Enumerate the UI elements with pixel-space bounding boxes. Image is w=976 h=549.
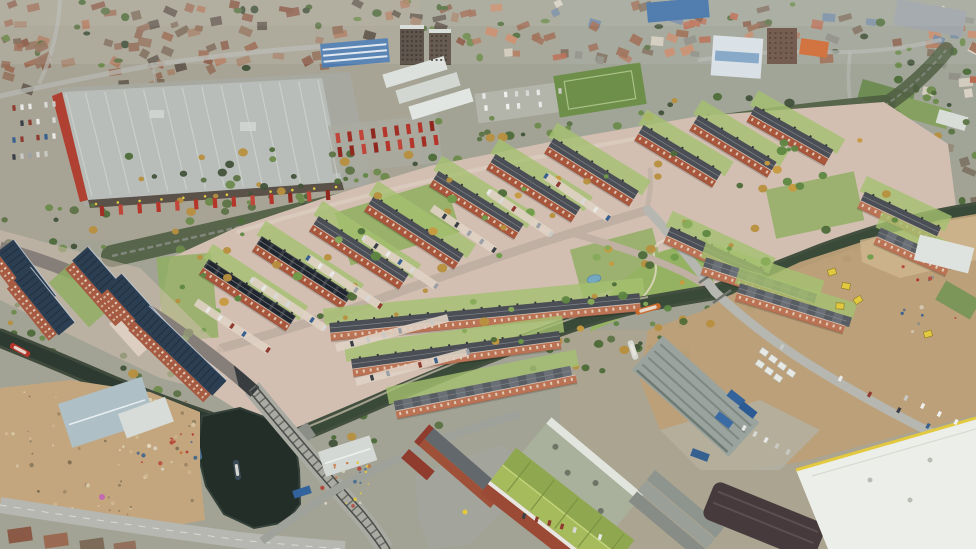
window	[570, 312, 572, 315]
scrap	[169, 440, 173, 444]
tree	[280, 191, 285, 195]
car	[515, 91, 519, 97]
truck	[175, 201, 180, 211]
scrap	[928, 277, 932, 281]
tree	[923, 94, 931, 101]
window	[487, 352, 489, 355]
tree	[247, 191, 252, 195]
tree	[783, 178, 792, 186]
tree	[947, 103, 952, 107]
tree	[272, 261, 281, 269]
tree	[45, 204, 53, 211]
tree	[894, 76, 903, 84]
car	[36, 119, 40, 125]
car	[52, 101, 56, 107]
chimney	[427, 312, 429, 314]
tree	[324, 254, 332, 261]
window	[515, 349, 517, 352]
tree	[638, 251, 648, 259]
house-roof	[964, 88, 973, 98]
tree	[125, 153, 133, 160]
chimney	[484, 339, 486, 341]
rubble	[109, 509, 111, 511]
tree	[933, 99, 939, 104]
tree	[658, 110, 664, 115]
tree	[200, 273, 206, 278]
tree	[758, 185, 767, 193]
scene-canvas	[0, 0, 976, 549]
window	[536, 315, 538, 318]
rubble	[130, 506, 132, 508]
window	[543, 345, 545, 348]
tree	[435, 118, 443, 125]
tree	[428, 154, 437, 162]
window	[501, 351, 503, 354]
rubble	[174, 435, 177, 438]
scrap	[919, 305, 923, 309]
scrap	[170, 438, 172, 440]
tree	[496, 253, 502, 258]
truck	[307, 191, 312, 201]
rubble	[23, 391, 25, 393]
chimney	[534, 302, 536, 304]
tree	[654, 324, 662, 331]
car	[28, 104, 32, 110]
tree	[963, 119, 970, 125]
chimney	[606, 295, 608, 297]
rubble	[130, 450, 133, 453]
window	[556, 313, 558, 316]
tree	[180, 171, 187, 177]
tree	[613, 122, 622, 130]
rubble	[57, 412, 60, 415]
chimney	[373, 317, 375, 319]
rubble	[188, 425, 190, 427]
rubble	[55, 396, 57, 398]
tree	[667, 102, 673, 107]
window	[577, 311, 579, 314]
rubble	[184, 463, 188, 467]
tree	[491, 337, 497, 342]
window	[361, 332, 363, 335]
rubble	[181, 411, 184, 414]
scrap	[366, 465, 368, 467]
tree	[670, 151, 677, 157]
window	[626, 306, 628, 309]
scrap	[141, 453, 145, 457]
car	[504, 92, 508, 98]
scrap	[141, 461, 143, 463]
window	[438, 324, 440, 327]
scrap	[351, 504, 355, 508]
aerial-visualisation-image	[0, 0, 976, 549]
window	[466, 322, 468, 325]
rubble	[120, 480, 122, 482]
tree	[423, 288, 428, 293]
tree	[128, 369, 138, 378]
rubble	[111, 501, 115, 505]
dock-door	[117, 201, 120, 204]
tree	[240, 232, 244, 236]
rubble	[63, 490, 67, 494]
rubble	[27, 431, 29, 433]
tree	[185, 217, 194, 225]
window	[549, 314, 551, 317]
tree	[120, 365, 126, 370]
tree	[39, 336, 45, 341]
window	[591, 310, 593, 313]
rubble	[30, 440, 32, 442]
tree	[180, 285, 186, 290]
rubble	[117, 463, 119, 465]
tree	[654, 160, 662, 167]
car	[517, 103, 521, 109]
rubble	[175, 447, 179, 451]
scrap	[356, 461, 359, 464]
tree	[1, 217, 7, 222]
dock-door	[138, 200, 141, 203]
window	[550, 344, 552, 347]
rubble	[86, 483, 90, 487]
tree	[736, 183, 743, 189]
tree	[638, 110, 644, 115]
chimney	[552, 300, 554, 302]
tree	[221, 208, 229, 215]
car	[506, 104, 510, 110]
scrap	[901, 312, 904, 315]
chimney	[588, 296, 590, 298]
chimney	[466, 342, 468, 344]
scrap	[180, 451, 183, 454]
tree	[521, 187, 526, 192]
tree	[593, 254, 601, 261]
tree	[780, 139, 789, 146]
tree	[882, 190, 891, 198]
car	[20, 136, 24, 142]
rubble	[29, 437, 32, 440]
truck	[231, 197, 236, 207]
tree	[786, 147, 791, 151]
car	[28, 153, 32, 159]
tree	[329, 151, 336, 157]
chimney	[516, 303, 518, 305]
car	[537, 90, 541, 96]
tree	[152, 174, 157, 179]
car	[12, 105, 16, 111]
scrap	[954, 317, 956, 319]
tree	[680, 280, 685, 284]
chimney	[480, 307, 482, 309]
rubble	[184, 401, 187, 404]
tree	[293, 272, 303, 280]
scrap	[359, 471, 361, 473]
tree	[223, 247, 231, 254]
window	[368, 331, 370, 334]
rubble	[78, 447, 81, 450]
tree	[223, 274, 232, 282]
house-roof	[167, 69, 175, 76]
tree	[373, 169, 381, 176]
tree	[605, 245, 611, 250]
scrap	[364, 468, 366, 470]
tree	[222, 199, 232, 208]
car	[28, 120, 32, 126]
scrap	[365, 470, 368, 473]
tree	[201, 177, 207, 182]
window	[347, 333, 349, 336]
tree	[404, 151, 414, 159]
truck	[156, 202, 161, 212]
scrap	[345, 502, 347, 504]
tree	[446, 177, 452, 182]
tree	[447, 195, 457, 203]
chimney	[359, 356, 361, 358]
truck	[213, 198, 218, 208]
truck	[250, 195, 255, 205]
dock-door	[335, 186, 338, 189]
scrap	[342, 470, 345, 473]
haze	[0, 0, 976, 26]
tree	[654, 173, 662, 179]
window	[340, 334, 342, 337]
rubble	[98, 505, 100, 507]
tree	[612, 282, 617, 286]
car	[44, 102, 48, 108]
forklift	[463, 510, 468, 515]
truck	[326, 190, 331, 200]
tree	[138, 177, 144, 182]
tree	[857, 138, 862, 143]
rubble	[31, 453, 33, 455]
tree	[577, 325, 584, 331]
tree	[434, 422, 443, 429]
car	[12, 154, 16, 160]
tree	[101, 245, 106, 249]
tree	[821, 226, 831, 234]
scrap	[359, 501, 362, 504]
window	[473, 321, 475, 324]
tree	[69, 206, 78, 214]
window	[370, 368, 372, 371]
tree	[702, 230, 711, 237]
scrap	[903, 309, 906, 312]
rubble	[37, 490, 40, 493]
tree	[613, 321, 619, 326]
window	[501, 318, 503, 321]
tree	[347, 433, 356, 441]
tree	[607, 336, 615, 343]
rubble	[68, 460, 72, 464]
tree	[363, 173, 368, 178]
window	[584, 310, 586, 313]
dock-door	[269, 190, 272, 193]
tree	[588, 299, 595, 305]
tree	[609, 262, 614, 266]
chimney	[501, 337, 503, 339]
tree	[173, 390, 181, 397]
tree	[233, 175, 241, 182]
car	[20, 104, 24, 110]
window	[333, 334, 335, 337]
tree	[234, 296, 241, 302]
car	[52, 117, 56, 123]
chimney	[448, 344, 450, 346]
tree	[819, 172, 828, 179]
rubble	[52, 444, 54, 446]
rubble	[16, 464, 19, 467]
roof-vent	[868, 478, 873, 483]
scrap	[360, 492, 362, 494]
window	[508, 350, 510, 353]
rubble	[191, 499, 194, 502]
chimney	[412, 349, 414, 351]
chimney	[377, 354, 379, 356]
tree	[373, 192, 382, 199]
scrap	[359, 482, 361, 484]
tree	[298, 198, 305, 204]
window	[508, 318, 510, 321]
scrap	[353, 480, 357, 484]
tree	[599, 368, 605, 373]
rubble	[181, 465, 183, 467]
excavator	[836, 303, 844, 309]
dock-door	[160, 198, 163, 201]
tree	[371, 252, 381, 261]
tree	[242, 65, 251, 71]
chimney	[394, 351, 396, 353]
tree	[727, 246, 732, 250]
scrap	[186, 451, 189, 454]
tree	[269, 147, 275, 152]
tree	[773, 166, 782, 174]
tree	[358, 228, 366, 235]
window	[515, 317, 517, 320]
car	[526, 90, 530, 96]
scrap	[917, 322, 920, 325]
pink-digger	[99, 494, 105, 500]
scrap	[921, 314, 924, 317]
dock-door	[226, 193, 229, 196]
rubble	[11, 432, 14, 435]
tree	[646, 245, 656, 253]
tree	[682, 220, 692, 229]
tree	[335, 236, 343, 243]
tree	[394, 312, 399, 316]
window	[459, 322, 461, 325]
chimney	[409, 314, 411, 316]
tree	[746, 95, 753, 101]
scrap	[153, 446, 157, 450]
tree	[89, 226, 98, 234]
window	[356, 370, 358, 373]
tree	[618, 292, 628, 300]
tree	[317, 313, 324, 319]
tree	[867, 254, 873, 259]
tree	[521, 133, 526, 137]
tree	[298, 184, 304, 189]
scrap	[911, 330, 914, 333]
tree	[482, 215, 488, 220]
chimney	[519, 335, 521, 337]
scrap	[193, 456, 197, 460]
window	[536, 346, 538, 349]
tree	[213, 194, 218, 199]
rubble	[122, 445, 125, 448]
tree	[340, 157, 350, 166]
tree	[58, 207, 63, 211]
tree	[564, 338, 570, 343]
tree	[198, 155, 205, 161]
scrap	[190, 441, 192, 443]
window	[494, 352, 496, 355]
tree	[963, 68, 972, 74]
tree	[582, 364, 590, 371]
tree	[931, 91, 937, 96]
tree	[795, 182, 804, 189]
tree	[225, 180, 235, 188]
tree	[479, 317, 489, 326]
car	[12, 137, 16, 143]
dock-door	[95, 203, 98, 206]
tree	[225, 161, 234, 169]
tree	[594, 340, 603, 348]
tree	[11, 310, 17, 315]
scrap	[333, 464, 336, 467]
window	[542, 314, 544, 317]
tree	[489, 116, 495, 121]
tree	[486, 134, 495, 142]
tree	[643, 302, 648, 306]
chimney	[445, 310, 447, 312]
car	[36, 135, 40, 141]
roof-unit	[150, 110, 164, 118]
tree	[197, 255, 203, 260]
scrap	[368, 483, 370, 485]
tree	[592, 294, 598, 299]
car	[484, 105, 488, 111]
tree	[343, 315, 348, 319]
window	[522, 316, 524, 319]
car	[20, 153, 24, 159]
tree	[371, 438, 377, 443]
tree	[477, 137, 482, 142]
rubble	[127, 514, 129, 516]
tree	[172, 228, 179, 234]
tree	[345, 166, 355, 174]
tree	[269, 156, 276, 162]
car	[44, 151, 48, 157]
tree	[670, 254, 678, 261]
dock-door	[313, 187, 316, 190]
excavator	[841, 282, 850, 289]
dock-door	[291, 189, 294, 192]
rubble	[118, 484, 121, 487]
window	[494, 319, 496, 322]
truck	[100, 206, 105, 216]
window	[619, 307, 621, 310]
tree	[238, 148, 248, 156]
rubble	[145, 474, 149, 478]
window	[481, 353, 483, 356]
tree	[948, 129, 955, 135]
tree	[764, 161, 770, 166]
scrap	[902, 265, 905, 268]
window	[529, 316, 531, 319]
tree	[713, 93, 722, 101]
window	[354, 332, 356, 335]
rubble	[104, 440, 107, 443]
tree	[518, 339, 524, 344]
